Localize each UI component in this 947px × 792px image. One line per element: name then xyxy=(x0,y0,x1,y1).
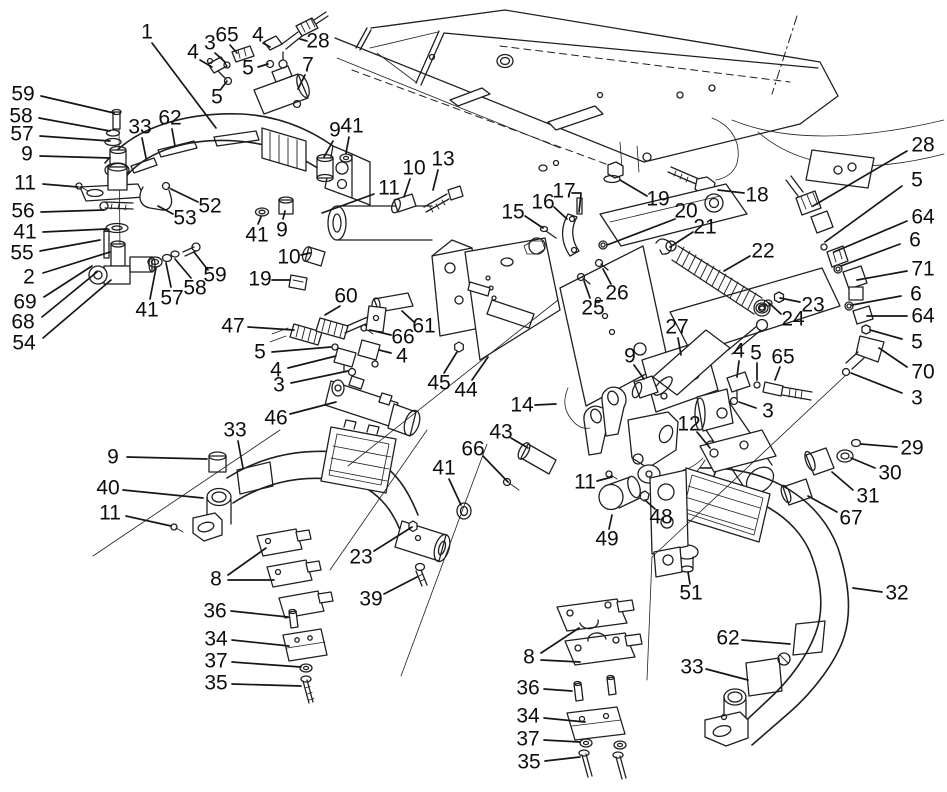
leader-line-37-82 xyxy=(232,662,301,667)
exploded-parts-diagram: 5958579115641552696854143654285573362525… xyxy=(0,0,947,792)
callout-7-20: 7 xyxy=(302,54,314,77)
callout-43-88: 43 xyxy=(489,421,512,444)
callout-16-39: 16 xyxy=(531,191,554,214)
callout-35-83: 35 xyxy=(204,672,227,695)
leader-line-29-67 xyxy=(861,444,897,447)
callout-65-15: 65 xyxy=(215,24,238,47)
callout-33-105: 33 xyxy=(223,419,246,442)
parts-diagram-canvas: 5958579115641552696854143654285573362525… xyxy=(0,0,947,792)
callout-9-26: 9 xyxy=(276,219,288,242)
leader-line-36-80 xyxy=(231,611,288,617)
callout-26-50: 26 xyxy=(605,282,628,305)
leader-line-59-0 xyxy=(41,96,114,113)
callout-12-66: 12 xyxy=(677,413,700,436)
leader-line-58-31 xyxy=(175,259,191,278)
callout-55-7: 55 xyxy=(10,242,33,265)
callout-4-13: 4 xyxy=(187,41,199,64)
callout-65-64: 65 xyxy=(771,346,794,369)
leader-line-65-64 xyxy=(775,367,780,380)
leader-line-11-4 xyxy=(43,184,78,187)
callout-59-32: 59 xyxy=(203,264,226,287)
leader-line-16-39 xyxy=(554,207,567,219)
callout-23-84: 23 xyxy=(349,546,372,569)
callout-33-75: 33 xyxy=(680,656,703,679)
callout-19-41: 19 xyxy=(646,188,669,211)
leader-line-35-83 xyxy=(232,684,301,686)
callout-31-69: 31 xyxy=(856,485,879,508)
callout-67-70: 67 xyxy=(839,507,862,530)
leader-line-56-5 xyxy=(41,210,104,212)
callout-49-90: 49 xyxy=(595,528,618,551)
callout-22-45: 22 xyxy=(751,240,774,263)
callout-61-97: 61 xyxy=(412,315,435,338)
callout-66-87: 66 xyxy=(461,438,484,461)
callout-13-36: 13 xyxy=(431,148,454,171)
leader-line-15-38 xyxy=(525,216,543,228)
callout-2-8: 2 xyxy=(23,266,35,289)
leader-line-9-76 xyxy=(127,457,207,459)
callout-41-34: 41 xyxy=(340,115,363,138)
callout-28-17: 28 xyxy=(306,30,329,53)
callout-15-38: 15 xyxy=(501,201,524,224)
callout-59-0: 59 xyxy=(11,83,34,106)
callout-40-77: 40 xyxy=(96,477,119,500)
callout-5-18: 5 xyxy=(242,57,254,80)
callout-27-48: 27 xyxy=(665,316,688,339)
leader-line-5-101 xyxy=(272,347,331,352)
callout-41-25: 41 xyxy=(245,224,268,247)
callout-71-56: 71 xyxy=(911,258,934,281)
callout-11-89: 11 xyxy=(574,471,596,494)
callout-3-61: 3 xyxy=(911,387,923,410)
leader-line-6-55 xyxy=(841,244,900,266)
right-pivot-parts xyxy=(779,440,860,506)
callout-37-94: 37 xyxy=(516,728,539,751)
callout-25-49: 25 xyxy=(581,297,604,320)
leader-line-40-77 xyxy=(123,490,203,498)
callout-8-79: 8 xyxy=(210,568,222,591)
callout-44-107: 44 xyxy=(454,379,478,402)
callout-4-62: 4 xyxy=(733,340,745,363)
callout-18-42: 18 xyxy=(745,184,768,207)
callout-53-24: 53 xyxy=(173,207,196,230)
callout-5-53: 5 xyxy=(911,169,923,192)
leader-line-64-54 xyxy=(834,221,907,252)
callout-3-103: 3 xyxy=(273,374,285,397)
callout-10-27: 10 xyxy=(277,246,300,269)
leader-line-33-75 xyxy=(706,669,748,680)
callout-23-46: 23 xyxy=(801,294,824,317)
callout-9-76: 9 xyxy=(107,446,119,469)
leader-line-36-92 xyxy=(544,689,572,691)
callout-35-95: 35 xyxy=(517,751,540,774)
callout-48-71: 48 xyxy=(649,506,672,529)
clamp-stack-left xyxy=(257,529,333,703)
leader-line-41-34 xyxy=(346,137,349,153)
callout-54-11: 54 xyxy=(12,332,36,355)
callout-4-16: 4 xyxy=(252,24,264,47)
leader-line-68-10 xyxy=(42,272,97,317)
callout-46-104: 46 xyxy=(264,407,287,430)
callout-5-19: 5 xyxy=(211,86,223,109)
callout-11-4: 11 xyxy=(14,172,36,195)
leader-line-5-59 xyxy=(870,330,902,339)
leader-line-9-3 xyxy=(40,156,110,158)
callout-21-44: 21 xyxy=(693,216,716,239)
callout-5-101: 5 xyxy=(254,341,266,364)
callout-3-14: 3 xyxy=(204,32,216,55)
leader-line-39-85 xyxy=(384,577,417,594)
callout-47-100: 47 xyxy=(221,315,244,338)
leader-line-11-89 xyxy=(597,477,612,481)
callout-19-28: 19 xyxy=(248,268,271,291)
leader-line-33-21 xyxy=(142,138,146,158)
callout-9-3: 9 xyxy=(21,143,33,166)
callout-60-96: 60 xyxy=(334,285,357,308)
callout-52-23: 52 xyxy=(198,195,221,218)
leader-line-4-102 xyxy=(288,356,336,368)
leader-line-3-61 xyxy=(851,373,902,393)
callout-10-35: 10 xyxy=(402,157,425,180)
leader-line-22-45 xyxy=(724,256,750,271)
leader-line-67-70 xyxy=(808,496,837,512)
callout-9-51: 9 xyxy=(624,345,636,368)
leader-line-58-1 xyxy=(39,118,110,131)
leader-line-14-108 xyxy=(535,404,556,405)
callout-57-30: 57 xyxy=(160,287,183,310)
callout-64-54: 64 xyxy=(911,206,935,229)
callout-41-6: 41 xyxy=(13,221,36,244)
callout-70-60: 70 xyxy=(911,361,934,384)
leader-line-55-7 xyxy=(40,240,100,251)
callout-29-67: 29 xyxy=(900,437,923,460)
callout-36-80: 36 xyxy=(203,600,226,623)
callout-56-5: 56 xyxy=(11,200,34,223)
callout-6-57: 6 xyxy=(910,283,922,306)
callout-64-58: 64 xyxy=(911,305,935,328)
leader-line-41-86 xyxy=(449,479,461,505)
callout-37-82: 37 xyxy=(204,650,227,673)
callout-36-92: 36 xyxy=(516,677,539,700)
leader-line-46-104 xyxy=(290,402,336,414)
callout-5-63: 5 xyxy=(750,342,762,365)
leader-line-4-99 xyxy=(379,350,391,353)
leader-line-3-65 xyxy=(739,402,756,408)
callout-45-106: 45 xyxy=(427,372,450,395)
callout-33-21: 33 xyxy=(128,116,151,139)
callout-41-86: 41 xyxy=(432,457,455,480)
main-frame-illustration xyxy=(335,10,944,188)
callout-41-29: 41 xyxy=(135,299,158,322)
callout-68-10: 68 xyxy=(11,311,34,334)
leader-line-11-78 xyxy=(126,516,171,526)
leader-line-41-6 xyxy=(43,229,106,232)
clamp-stack-right xyxy=(557,599,642,779)
callout-5-59: 5 xyxy=(911,331,923,354)
leader-line-62-74 xyxy=(742,640,790,644)
callout-24-47: 24 xyxy=(781,308,805,331)
leader-line-30-68 xyxy=(851,458,875,468)
callout-51-72: 51 xyxy=(679,582,702,605)
callout-62-74: 62 xyxy=(716,627,739,650)
callout-14-108: 14 xyxy=(510,394,534,417)
leader-line-31-69 xyxy=(832,472,853,490)
leader-line-45-106 xyxy=(444,352,457,373)
leader-line-70-60 xyxy=(879,348,907,367)
callout-34-93: 34 xyxy=(516,705,540,728)
leader-line-52-23 xyxy=(171,189,198,202)
callout-28-52: 28 xyxy=(911,134,934,157)
callout-3-65: 3 xyxy=(762,400,774,423)
callout-11-78: 11 xyxy=(99,502,121,525)
callout-30-68: 30 xyxy=(878,462,901,485)
leader-line-57-2 xyxy=(40,136,110,141)
callout-4-99: 4 xyxy=(396,345,408,368)
callout-32-73: 32 xyxy=(885,582,908,605)
leader-line-66-87 xyxy=(483,456,508,482)
callout-8-91: 8 xyxy=(523,646,535,669)
callout-11-37: 11 xyxy=(378,177,400,200)
callout-17-40: 17 xyxy=(552,180,575,203)
callout-1-12: 1 xyxy=(141,21,153,44)
leader-line-8-79 xyxy=(228,548,266,575)
leader-line-62-22 xyxy=(172,129,175,146)
callout-62-22: 62 xyxy=(158,107,181,130)
leader-line-19-41 xyxy=(620,180,647,196)
leader-line-35-95 xyxy=(545,757,580,761)
callout-6-55: 6 xyxy=(909,229,921,252)
leader-line-33-105 xyxy=(238,441,243,468)
leader-line-5-53 xyxy=(825,186,902,242)
callout-9-33: 9 xyxy=(329,119,341,142)
leader-line-32-73 xyxy=(853,588,882,592)
leader-line-13-36 xyxy=(433,170,438,190)
callout-34-81: 34 xyxy=(204,628,228,651)
leader-line-21-44 xyxy=(670,232,693,247)
leader-line-57-30 xyxy=(166,263,171,287)
callout-39-85: 39 xyxy=(359,588,382,611)
leader-line-34-81 xyxy=(232,640,289,646)
